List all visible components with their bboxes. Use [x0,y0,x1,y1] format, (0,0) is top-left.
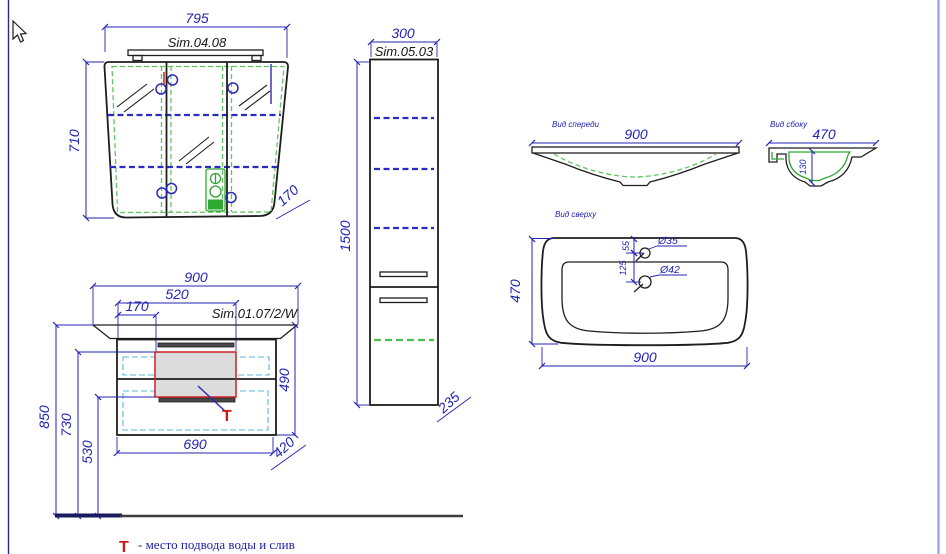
vanity-handle-lower [159,398,235,402]
vanity-model-label: Sim.01.07/2/W [212,306,299,321]
vanity-top-height-dim: 850 [36,405,52,429]
mirror-light-foot-left [133,56,142,61]
vanity-view: 900 520 170 Sim.01.07/2/W Т 490 690 [36,269,463,516]
vanity-t-zone-fill [155,352,236,397]
sink-side-depth-dim: 470 [812,126,836,142]
legend-t-mark: Т [119,539,129,554]
sink-front-view: Вид спереди 900 [532,120,739,186]
sink-top-outline [541,238,747,345]
sink-top-label: Вид сверху [555,210,597,219]
mirror-width-dim: 795 [185,10,209,26]
vanity-drain-height-dim: 530 [79,440,95,464]
tall-handle-lower [380,298,427,303]
tall-cabinet-view: 300 Sim.05.03 1500 235 [337,25,471,422]
sink-drain-offset-dim: 125 [618,260,628,276]
mirror-switch [209,200,223,209]
tall-handle-upper [380,272,427,277]
tall-width-dim: 300 [391,25,415,41]
mirror-cabinet-body [104,62,288,218]
sink-top-bowl-outline [562,262,728,333]
vanity-body-width-dim: 690 [183,436,207,452]
sink-top-depth-dim: 470 [507,279,523,303]
mouse-cursor-icon [13,21,26,42]
vanity-supply-height-dim: 730 [58,413,74,437]
sink-drain-hole-dim: Ø42 [659,264,680,276]
sink-front-bowl-inner [554,154,716,177]
tall-cabinet-body [370,60,438,406]
sink-front-bowl [533,153,738,186]
mirror-light-foot-right [252,56,261,61]
sink-front-label: Вид спереди [552,120,600,129]
mirror-cabinet-view: 795 Sim.04.08 [66,10,310,219]
tall-height-dim: 1500 [337,220,353,251]
vanity-countertop [93,325,297,339]
drawing-sheet: 795 Sim.04.08 [0,0,946,554]
sink-side-view: Вид сбоку 470 130 [769,120,876,186]
sink-side-bowl-depth-dim: 130 [798,159,808,174]
mirror-inner-frame [112,67,284,213]
mirror-depth-dim: 170 [274,181,302,209]
sink-top-view: Вид сверху Ø35 Ø42 55 125 470 900 [507,210,748,366]
sink-front-rim [532,147,739,153]
sink-top-width-dim: 900 [633,349,657,365]
sink-faucet-hole-dim: Ø35 [657,235,678,247]
vanity-width-dim: 900 [184,269,208,285]
sink-side-profile-inner [772,152,850,181]
sink-side-profile [769,148,876,186]
vanity-height-dim: 490 [276,368,292,392]
sink-faucet-offset-dim: 55 [621,240,631,251]
vanity-t-mark: Т [222,408,232,425]
mirror-light-bar [128,50,263,56]
mirror-model-label: Sim.04.08 [168,35,227,50]
vanity-handle-upper [158,343,234,347]
sink-side-label: Вид сбоку [770,120,808,129]
mirror-height-dim: 710 [66,129,82,153]
legend-text: - место подвода воды и слив [138,537,295,552]
mirror-glass-hatch [117,84,270,164]
legend: Т - место подвода воды и слив [119,537,295,554]
sink-front-width-dim: 900 [624,126,648,142]
vanity-cutout-width-dim: 520 [165,286,189,302]
mirror-knob [228,83,238,93]
tall-model-label: Sim.05.03 [375,44,434,59]
vanity-depth-dim: 420 [270,433,298,461]
cad-drawing: 795 Sim.04.08 [0,0,946,554]
mirror-knob [168,75,178,85]
vanity-cutout-offset-dim: 170 [125,298,149,314]
